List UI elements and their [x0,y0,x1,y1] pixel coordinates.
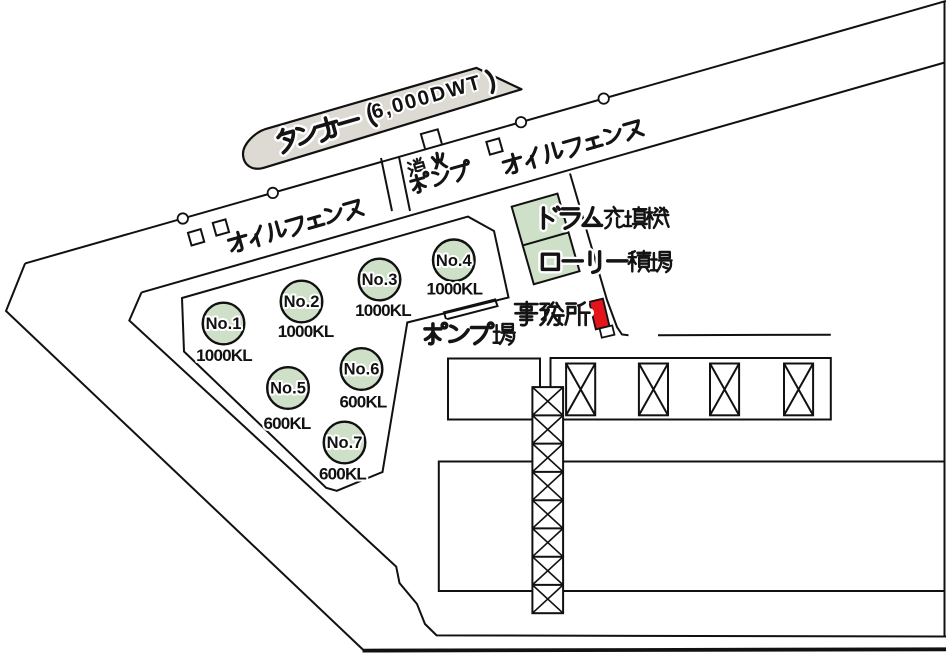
svg-text:600KL: 600KL [319,465,366,484]
svg-text:600KL: 600KL [263,414,310,433]
svg-text:No.7: No.7 [327,434,363,452]
svg-text:1000KL: 1000KL [278,322,334,341]
svg-text:No.3: No.3 [362,271,398,289]
svg-text:1000KL: 1000KL [355,301,411,320]
svg-text:No.6: No.6 [344,361,380,379]
svg-text:No.1: No.1 [206,315,242,333]
svg-text:1000KL: 1000KL [196,346,252,365]
svg-text:No.4: No.4 [436,252,473,270]
svg-text:No.5: No.5 [270,380,306,398]
svg-text:600KL: 600KL [339,393,386,412]
svg-text:1000KL: 1000KL [427,280,483,299]
svg-text:No.2: No.2 [284,293,320,311]
